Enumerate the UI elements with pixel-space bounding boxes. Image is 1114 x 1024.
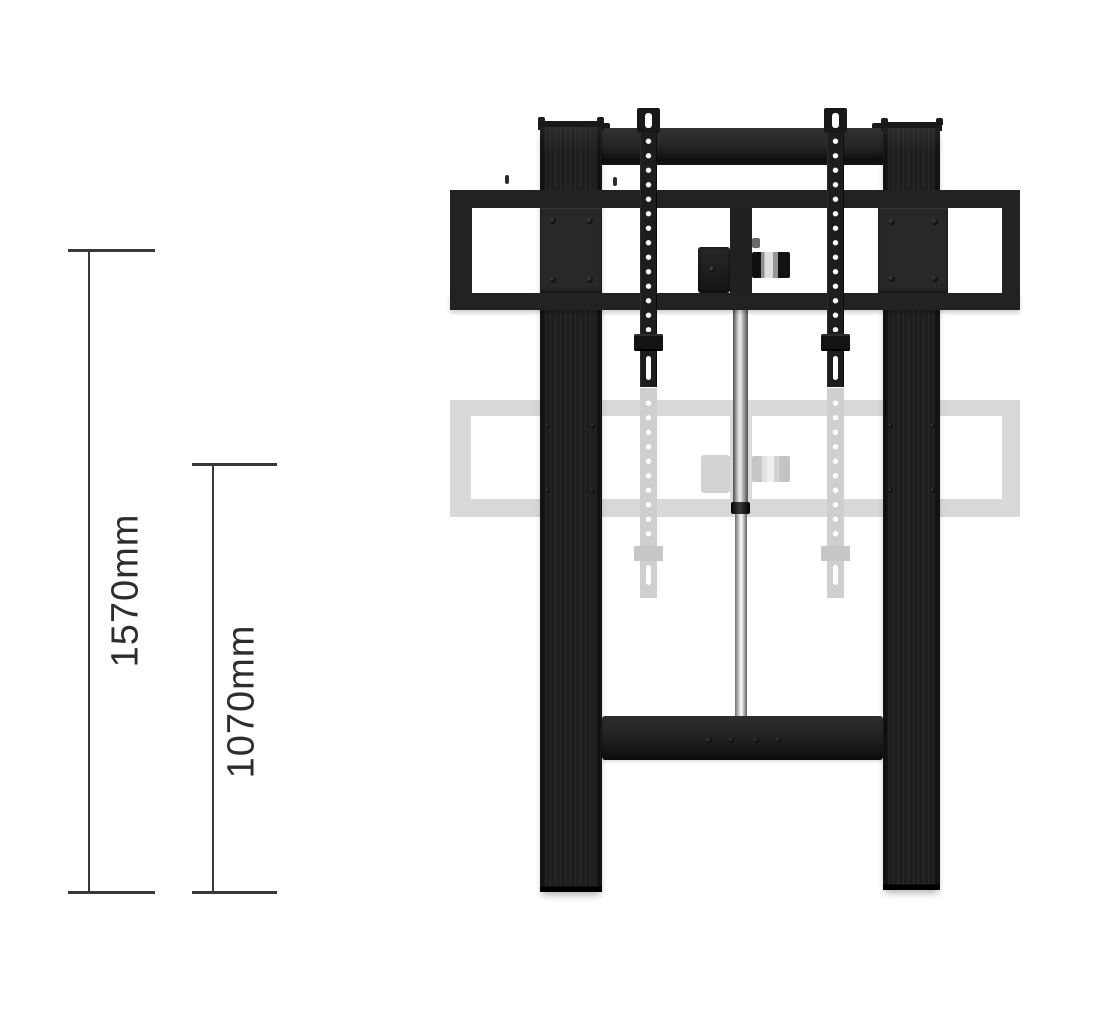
plate-screw <box>549 217 556 224</box>
dimension-1070-line <box>212 465 214 892</box>
motor-screw <box>709 266 715 272</box>
loose-screw <box>505 175 509 184</box>
vesa-strip-left-bottom-slot <box>646 356 651 380</box>
ghost-frame-right-member <box>1002 400 1020 517</box>
product-dimension-diagram: 1570mm 1070mm <box>0 0 1114 1024</box>
lift-pole-upper <box>733 310 748 504</box>
left-column-rivet-1 <box>545 423 550 428</box>
dimension-1570-label-wrap: 1570mm <box>100 520 152 660</box>
crossbar-screw <box>706 737 712 743</box>
adapter-plate-right <box>878 208 948 293</box>
frame-bottom-bar <box>450 293 1020 310</box>
left-column-rivet-4 <box>590 488 595 493</box>
dimension-1570-line <box>88 251 90 892</box>
ghost-vesa-strip-right-clamp <box>821 546 850 561</box>
gas-spring-cylinder <box>752 252 790 278</box>
lift-pole-lower <box>735 514 747 717</box>
ghost-vesa-strip-left-slot <box>646 565 651 585</box>
vesa-strip-right-clamp <box>821 334 850 351</box>
plate-screw <box>888 218 895 225</box>
left-column-rivet-3 <box>545 488 550 493</box>
dimension-1570-bottom-cap <box>68 891 155 894</box>
divider-bolt <box>752 238 760 248</box>
vesa-strip-right-holes <box>827 134 844 332</box>
right-column-rivet-1 <box>888 423 893 428</box>
vesa-strip-right-top-bracket <box>824 108 847 133</box>
right-column-rivet-3 <box>888 488 893 493</box>
vesa-strip-left-clamp <box>634 334 663 351</box>
bottom-crossbar <box>602 716 883 760</box>
left-column-rivet-2 <box>590 423 595 428</box>
dimension-1570-top-cap <box>68 249 155 252</box>
motor-box <box>698 247 730 293</box>
right-column-rivet-2 <box>930 423 935 428</box>
ghost-vesa-strip-right-holes <box>827 396 844 540</box>
vesa-strip-right-top-slot <box>832 113 839 128</box>
plate-screw <box>586 276 593 283</box>
dimension-1570-label: 1570mm <box>105 513 148 667</box>
plate-screw <box>931 218 938 225</box>
ghost-frame-left-member <box>450 400 471 517</box>
ghost-vesa-strip-left-clamp <box>634 546 663 561</box>
crossbar-screw <box>775 737 781 743</box>
crossbar-screw <box>753 737 759 743</box>
loose-screw <box>613 177 617 186</box>
adapter-plate-left <box>540 208 602 293</box>
plate-screw <box>931 275 938 282</box>
plate-screw <box>888 275 895 282</box>
ghost-vesa-strip-left-holes <box>640 396 657 540</box>
frame-left-member <box>450 190 472 310</box>
ghost-vesa-strip-right-slot <box>833 565 838 585</box>
vesa-strip-left-top-slot <box>645 113 652 128</box>
plate-screw <box>549 276 556 283</box>
vesa-strip-left-holes <box>640 134 657 332</box>
vesa-strip-left-top-bracket <box>637 108 660 133</box>
dimension-1070-label-wrap: 1070mm <box>216 631 268 771</box>
dimension-1070-bottom-cap <box>192 891 277 894</box>
right-column-rivet-4 <box>930 488 935 493</box>
plate-screw <box>586 217 593 224</box>
vesa-strip-right-bottom-slot <box>833 356 838 380</box>
ghost-gas-spring <box>752 456 790 482</box>
crossbar-screw <box>728 737 734 743</box>
ghost-motor-box <box>701 455 730 493</box>
dimension-1070-top-cap <box>192 463 277 466</box>
frame-center-divider <box>730 208 752 293</box>
dimension-1070-label: 1070mm <box>221 624 264 778</box>
frame-right-member <box>1002 190 1020 310</box>
lift-pole-collar <box>731 502 750 514</box>
frame-top-bar <box>450 190 1020 208</box>
